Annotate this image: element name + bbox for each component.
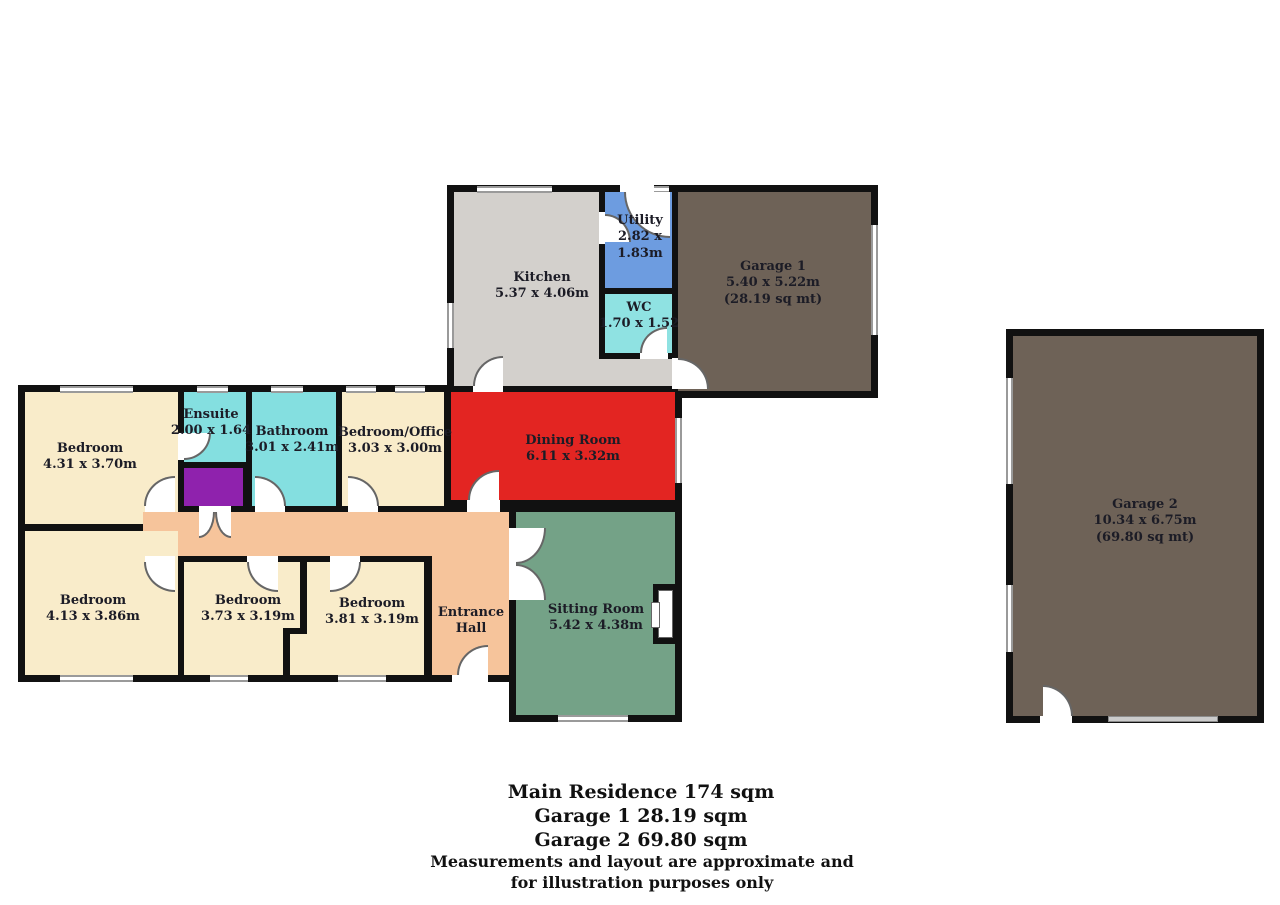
airing-cupboard xyxy=(184,468,243,506)
window xyxy=(558,715,628,722)
door-gap xyxy=(255,506,285,512)
room-bathroom-label: Bathroom 3.01 x 2.41m xyxy=(245,424,339,457)
door-gap xyxy=(348,506,378,512)
window xyxy=(197,386,228,393)
room-area: (28.19 sq mt) xyxy=(724,292,822,308)
room-bedroom-4-label: Bedroom 3.81 x 3.19m xyxy=(325,596,419,629)
room-name: Dining Room xyxy=(525,433,621,449)
room-name: Utility xyxy=(617,213,663,229)
footer-disclaimer-line-1: Measurements and layout are approximate … xyxy=(430,852,854,871)
room-ensuite-label: Ensuite 2.00 x 1.64 xyxy=(171,407,251,440)
door-gap xyxy=(467,500,500,512)
room-dims: 4.31 x 3.70m xyxy=(43,457,137,473)
room-garage-2-label: Garage 2 10.34 x 6.75m (69.80 sq mt) xyxy=(1094,497,1197,546)
room-bedroom-2-label: Bedroom 4.13 x 3.86m xyxy=(46,593,140,626)
door-gap xyxy=(473,386,503,392)
garage-2-vehicle-door xyxy=(1108,716,1218,722)
room-dims: 4.13 x 3.86m xyxy=(46,609,140,625)
room-dims: 3.81 x 3.19m xyxy=(325,612,419,628)
room-bedroom-office-label: Bedroom/Office 3.03 x 3.00m xyxy=(338,425,452,458)
door-gap xyxy=(509,528,516,600)
room-dims: 3.73 x 3.19m xyxy=(201,609,295,625)
room-name: Bedroom/Office xyxy=(338,425,452,441)
room-dims: 5.42 x 4.38m xyxy=(548,618,644,634)
window-garage-1-door xyxy=(871,225,878,335)
room-dims: 6.11 x 3.32m xyxy=(525,449,621,465)
window xyxy=(60,675,133,682)
room-name: WC xyxy=(599,300,679,316)
room-bedroom-4-notch xyxy=(290,634,307,675)
footer-disclaimer-line-2: for illustration purposes only xyxy=(511,873,774,892)
footer-main-residence-area: Main Residence 174 sqm xyxy=(508,781,775,803)
room-utility-label: Utility 2.82 x 1.83m xyxy=(617,213,663,262)
room-dims: 1.83m xyxy=(617,246,663,262)
room-name: Sitting Room xyxy=(548,602,644,618)
room-dims: 1.70 x 1.52 xyxy=(599,316,679,332)
fireplace-step-icon xyxy=(651,602,660,628)
room-name: Entrance xyxy=(438,605,504,621)
window xyxy=(1006,378,1013,484)
room-dims: 5.37 x 4.06m xyxy=(495,286,589,302)
room-entrance-hall-label: Entrance Hall xyxy=(438,605,504,638)
room-dining-label: Dining Room 6.11 x 3.32m xyxy=(525,433,621,466)
room-bedroom-3-label: Bedroom 3.73 x 3.19m xyxy=(201,593,295,626)
room-dims: 10.34 x 6.75m xyxy=(1094,513,1197,529)
fireplace-icon xyxy=(658,590,673,638)
room-garage-1-label: Garage 1 5.40 x 5.22m (28.19 sq mt) xyxy=(724,259,822,308)
door-gap xyxy=(452,675,488,682)
hallway-corridor xyxy=(143,512,449,556)
room-bedroom-1-label: Bedroom 4.31 x 3.70m xyxy=(43,441,137,474)
room-dims: 2.82 x xyxy=(617,229,663,245)
window xyxy=(477,186,552,193)
footer-garage-1-area: Garage 1 28.19 sqm xyxy=(535,805,748,827)
room-dims: 3.03 x 3.00m xyxy=(338,441,452,457)
door-gap xyxy=(640,353,668,359)
room-dims: 3.01 x 2.41m xyxy=(245,440,339,456)
room-sitting-label: Sitting Room 5.42 x 4.38m xyxy=(548,602,644,635)
room-area: (69.80 sq mt) xyxy=(1094,530,1197,546)
window xyxy=(338,675,386,682)
footer-garage-2-area: Garage 2 69.80 sqm xyxy=(535,829,748,851)
window xyxy=(210,675,248,682)
room-name: Ensuite xyxy=(171,407,251,423)
door-gap xyxy=(145,506,175,512)
window xyxy=(60,386,133,393)
room-name: Hall xyxy=(438,621,504,637)
window xyxy=(395,386,425,393)
room-name: Garage 1 xyxy=(724,259,822,275)
window xyxy=(447,303,454,348)
window xyxy=(271,386,303,393)
window xyxy=(346,386,376,393)
room-name: Bedroom xyxy=(46,593,140,609)
room-name: Bedroom xyxy=(43,441,137,457)
room-dims: 5.40 x 5.22m xyxy=(724,275,822,291)
door-gap xyxy=(620,185,654,192)
window xyxy=(1006,585,1013,652)
room-name: Bathroom xyxy=(245,424,339,440)
room-bedroom-3-lower xyxy=(184,628,283,675)
floor-plan: Kitchen 5.37 x 4.06m Utility 2.82 x 1.83… xyxy=(0,0,1280,905)
room-name: Garage 2 xyxy=(1094,497,1197,513)
door-gap xyxy=(1040,716,1072,723)
room-dims: 2.00 x 1.64 xyxy=(171,423,251,439)
room-name: Kitchen xyxy=(495,270,589,286)
room-kitchen-label: Kitchen 5.37 x 4.06m xyxy=(495,270,589,303)
window xyxy=(675,418,682,483)
room-wc-label: WC 1.70 x 1.52 xyxy=(599,300,679,333)
room-name: Bedroom xyxy=(201,593,295,609)
room-name: Bedroom xyxy=(325,596,419,612)
